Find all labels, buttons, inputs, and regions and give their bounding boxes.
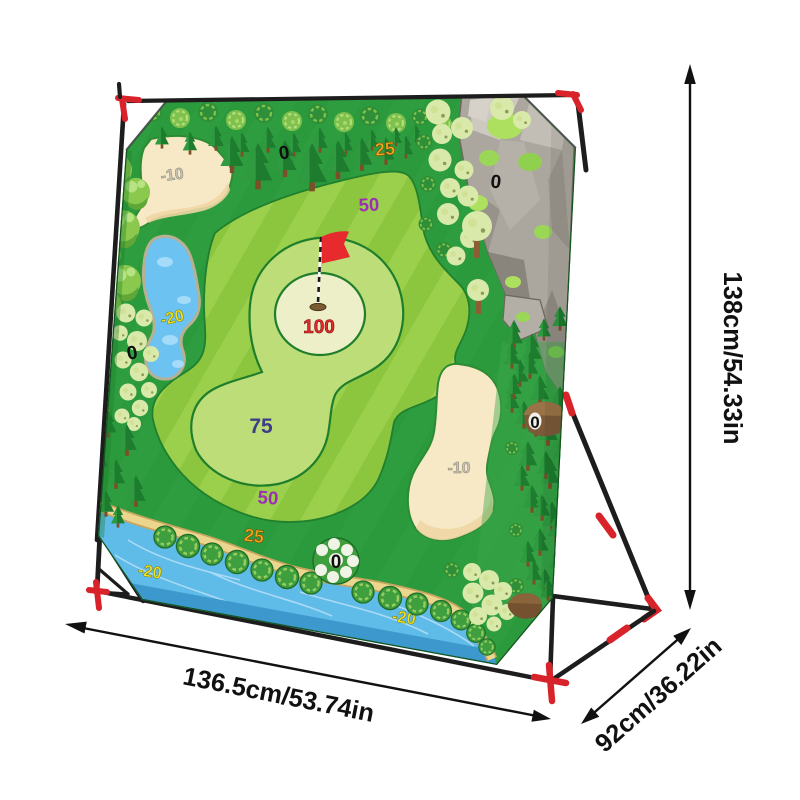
svg-text:75: 75 xyxy=(249,415,273,438)
svg-text:25: 25 xyxy=(243,525,265,547)
svg-text:0: 0 xyxy=(530,413,539,432)
svg-text:138cm/54.33in: 138cm/54.33in xyxy=(718,272,746,445)
svg-text:0: 0 xyxy=(489,171,502,193)
svg-text:0: 0 xyxy=(331,552,342,573)
svg-text:100: 100 xyxy=(303,317,335,338)
svg-text:-10: -10 xyxy=(447,460,470,477)
svg-text:50: 50 xyxy=(358,193,380,215)
svg-text:-10: -10 xyxy=(160,165,185,185)
svg-text:25: 25 xyxy=(374,138,396,160)
svg-text:50: 50 xyxy=(257,486,279,508)
svg-text:-20: -20 xyxy=(137,561,163,583)
